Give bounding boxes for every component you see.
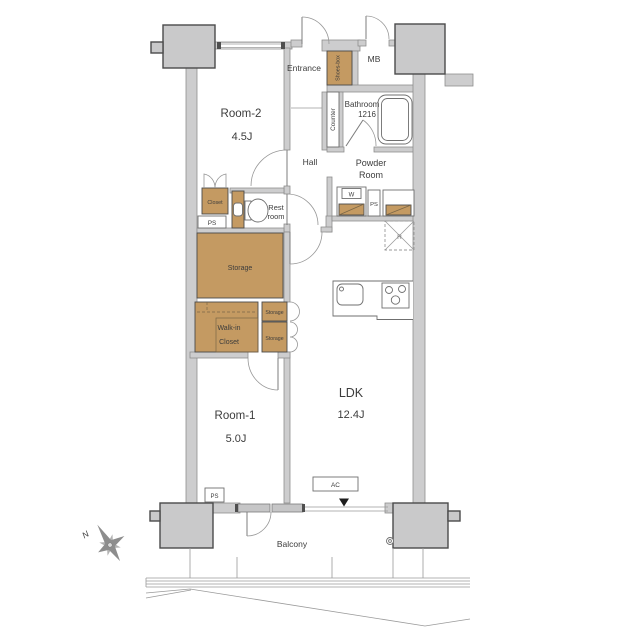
counter: Counter [327,92,339,147]
floor-plan-svg: Shoes-box Entrance Hall MB Bathroom 1216… [0,0,617,640]
ldk-size-label: 12.4J [338,409,365,421]
walkin-label-1: Walk-in [217,325,240,332]
compass-north-label: N [80,528,91,540]
restroom-label-1: Rest [268,203,284,212]
room2-window [217,42,285,49]
compass-icon: N [80,516,134,570]
ps-label-closet: PS [208,220,217,227]
room2-size-label: 4.5J [232,131,253,143]
bathroom: Bathroom 1216 [345,95,412,146]
storage-label: Storage [228,265,253,272]
toilet-bowl [248,199,268,222]
pipe-space-closet: PS [198,216,226,228]
room1-label: Room-1 [215,410,256,422]
powder-room-label-1: Powder [356,158,387,168]
room2-door [251,150,287,186]
room1-door [248,358,278,390]
washing-machine: W [337,187,366,216]
storage-small-bottom-label: Storage [265,336,283,342]
rest-room: Rest room [232,191,318,228]
pillar-bottom-left [160,503,213,548]
ps-label-room1: PS [210,494,218,500]
ldk-label: LDK [339,386,364,400]
entry-direction-marker [339,499,349,507]
bathroom-size-label: 1216 [358,110,376,119]
refrigerator-space: R [385,221,414,250]
ps-label-powder: PS [370,202,378,208]
entrance-label: Entrance [287,63,321,73]
storage-small-bottom: Storage [262,322,298,352]
hall-ldk-door [290,232,322,264]
mb-door [366,16,389,39]
walkin-label-2: Closet [219,339,239,346]
ac-label: AC [331,482,340,489]
kitchen [333,281,413,320]
shoes-box-label: Shoes-box [336,55,342,81]
floor-plan-page: Shoes-box Entrance Hall MB Bathroom 1216… [0,0,617,640]
walk-in-closet: Walk-in Closet [195,302,258,352]
ac-unit: AC [313,477,358,491]
room2-label: Room-2 [221,108,262,120]
pipe-space-powder: PS [368,190,380,216]
pillar-bottom-right [393,503,448,548]
room1-size-label: 5.0J [226,433,247,445]
fridge-label: R [397,234,402,241]
ground-lines [146,589,470,626]
hall-label: Hall [303,157,318,167]
balcony-door [247,512,271,536]
shoes-box: Shoes-box [327,51,352,85]
vanity [383,190,414,216]
storage-small-top-label: Storage [265,310,283,316]
bathroom-label: Bathroom [345,100,380,109]
pipe-space-room1: PS [205,488,224,502]
powder-room: Powder Room W PS [337,158,414,216]
room2-closet: Closet [202,174,228,214]
bottom-openings [235,499,388,513]
balcony-label: Balcony [277,539,308,549]
mb-label: MB [368,54,381,64]
storage-small-top: Storage [262,302,300,321]
pillar-top-left [163,25,215,68]
pillar-top-right [395,24,445,74]
powder-room-label-2: Room [359,170,383,180]
washer-label: W [349,193,355,199]
storage-room: Storage [197,233,283,298]
restroom-label-2: room [267,212,284,221]
counter-label: Counter [330,107,337,131]
closet-label: Closet [207,200,223,206]
